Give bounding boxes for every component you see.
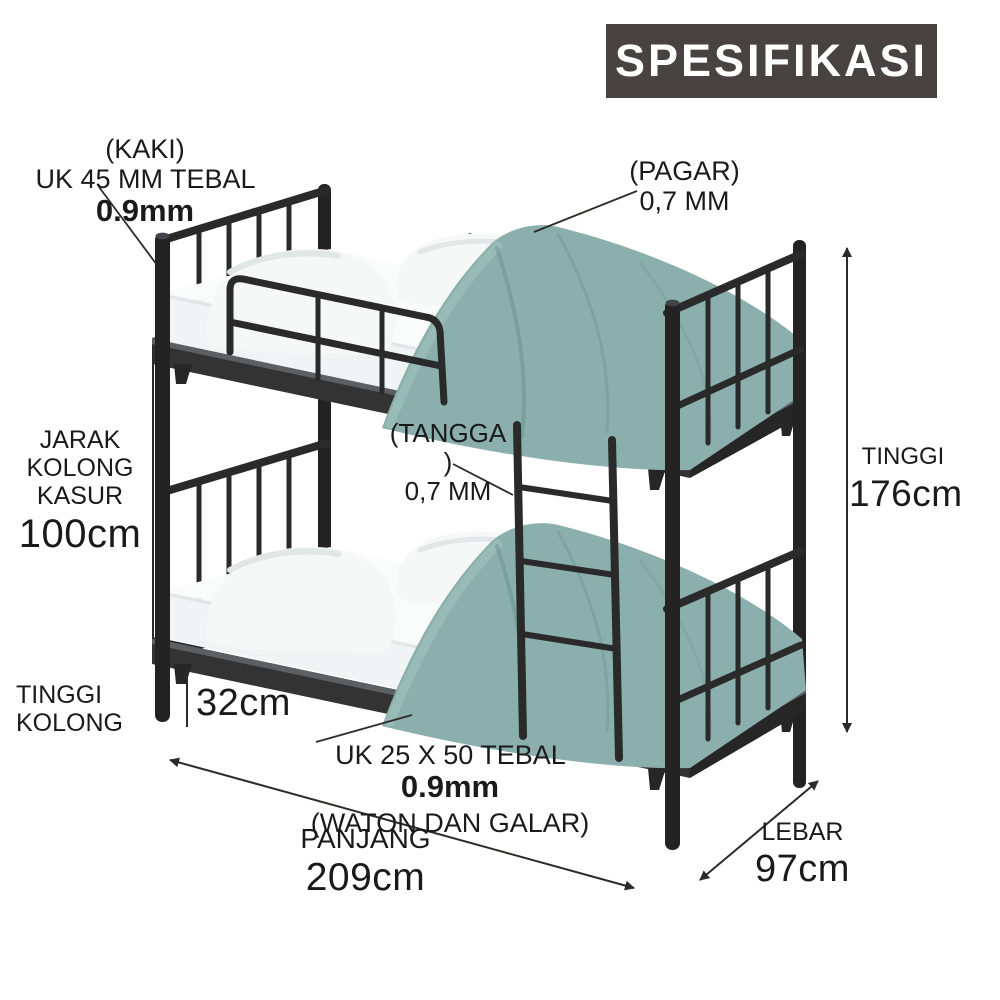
title-banner: SPESIFIKASI bbox=[606, 24, 937, 98]
annotation-jarak-kolong: JARAK KOLONG KASUR 100cm bbox=[0, 426, 160, 557]
page-title: SPESIFIKASI bbox=[615, 35, 928, 87]
annotation-pagar: (PAGAR) 0,7 MM bbox=[612, 156, 757, 216]
annotation-lebar: LEBAR 97cm bbox=[740, 818, 865, 891]
spec-sheet: SPESIFIKASI (KAKI) UK 45 MM TEBAL 0.9mm … bbox=[0, 0, 1000, 1000]
annotation-tinggi: TINGGI 176cm bbox=[849, 444, 957, 514]
annotation-panjang: PANJANG 209cm bbox=[293, 823, 438, 900]
annotation-tangga: (TANGGA ) 0,7 MM bbox=[383, 419, 513, 506]
annotation-kaki: (KAKI) UK 45 MM TEBAL 0.9mm bbox=[0, 134, 290, 229]
annotation-tinggi-kolong-label: TINGGI KOLONG bbox=[2, 681, 176, 737]
annotation-tinggi-kolong-value: 32cm bbox=[196, 682, 316, 725]
foot-front-post bbox=[665, 300, 680, 850]
